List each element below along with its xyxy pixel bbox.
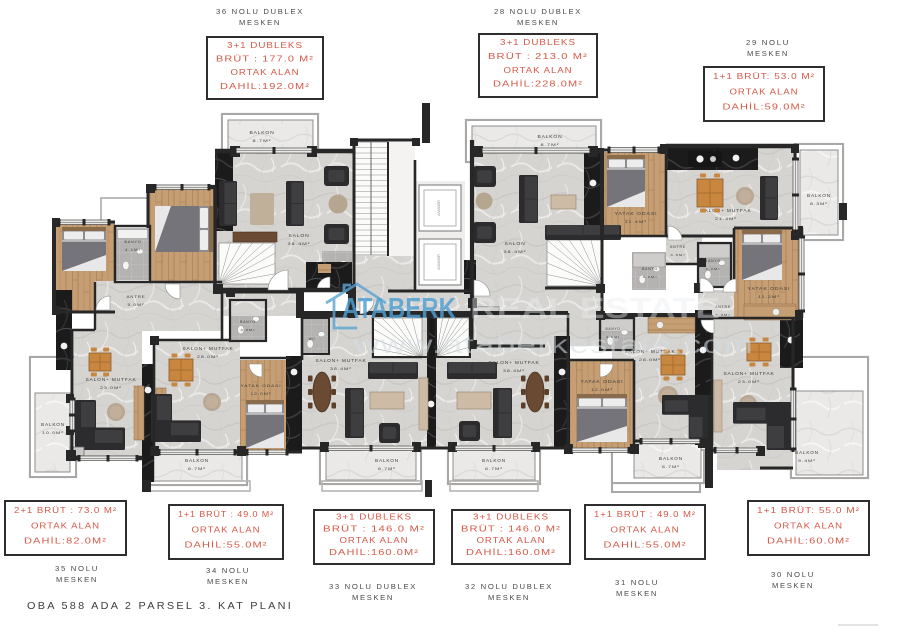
svg-text:ASANSÖR: ASANSÖR	[437, 200, 441, 216]
svg-text:MESKEN: MESKEN	[56, 575, 98, 584]
svg-text:29 NOLU: 29 NOLU	[746, 38, 790, 47]
svg-text:BRÜT : 146.0 M²: BRÜT : 146.0 M²	[323, 524, 425, 533]
svg-text:32 NOLU DUBLEX: 32 NOLU DUBLEX	[465, 582, 553, 591]
svg-text:DAHİL:82.0M²: DAHİL:82.0M²	[24, 537, 107, 546]
svg-text:6.7M²: 6.7M²	[485, 467, 503, 471]
svg-text:10.0M²: 10.0M²	[42, 431, 64, 435]
svg-text:11.2M²: 11.2M²	[758, 295, 780, 299]
svg-text:31 NOLU: 31 NOLU	[615, 578, 659, 587]
svg-text:BANYO: BANYO	[642, 267, 658, 271]
svg-text:ORTAK ALAN: ORTAK ALAN	[31, 521, 100, 530]
svg-text:8.7M²: 8.7M²	[541, 142, 560, 147]
svg-text:SALON+ MUTFAK: SALON+ MUTFAK	[724, 371, 775, 376]
svg-text:YATAK ODASI: YATAK ODASI	[581, 379, 624, 384]
svg-text:BALKON: BALKON	[795, 450, 819, 455]
svg-text:28.0M²: 28.0M²	[197, 355, 219, 359]
svg-text:BALKON: BALKON	[659, 456, 683, 461]
svg-text:6.7M²: 6.7M²	[378, 467, 396, 471]
svg-text:BALKON: BALKON	[807, 193, 831, 198]
svg-text:2+1 BRÜT : 73.0 M²: 2+1 BRÜT : 73.0 M²	[14, 506, 117, 515]
svg-text:ORTAK ALAN: ORTAK ALAN	[340, 536, 409, 545]
svg-text:BRÜT : 213.0 M²: BRÜT : 213.0 M²	[488, 52, 588, 61]
svg-text:ATABERK: ATABERK	[342, 293, 456, 325]
svg-text:1+1 BRÜT : 49.0 M²: 1+1 BRÜT : 49.0 M²	[178, 510, 274, 519]
svg-text:38.4M²: 38.4M²	[288, 241, 311, 246]
svg-text:36 NOLU DUBLEX: 36 NOLU DUBLEX	[216, 7, 304, 16]
svg-text:23.0M²: 23.0M²	[738, 380, 760, 384]
svg-text:ORTAK ALAN: ORTAK ALAN	[231, 68, 300, 77]
svg-text:YATAK ODASI: YATAK ODASI	[615, 211, 658, 216]
svg-text:33 NOLU DUBLEX: 33 NOLU DUBLEX	[329, 582, 417, 591]
svg-text:MESKEN: MESKEN	[207, 577, 249, 586]
svg-text:1+1 BRÜT: 55.0 M²: 1+1 BRÜT: 55.0 M²	[757, 506, 860, 515]
svg-text:23.0M²: 23.0M²	[100, 386, 122, 390]
svg-text:ORTAK ALAN: ORTAK ALAN	[477, 536, 546, 545]
svg-text:ORTAK ALAN: ORTAK ALAN	[192, 525, 261, 534]
svg-text:YATAK ODASI: YATAK ODASI	[748, 286, 791, 291]
svg-text:6.7M²: 6.7M²	[662, 465, 680, 469]
svg-text:SALON: SALON	[505, 241, 526, 246]
svg-text:BALKON: BALKON	[375, 458, 399, 463]
svg-text:35 NOLU: 35 NOLU	[55, 564, 99, 573]
svg-text:BALKON: BALKON	[41, 422, 65, 427]
svg-text:MESKEN: MESKEN	[488, 593, 530, 602]
svg-text:4.0M²: 4.0M²	[241, 328, 256, 332]
svg-text:DAHİL:192.0M²: DAHİL:192.0M²	[220, 82, 310, 91]
svg-text:28 NOLU DUBLEX: 28 NOLU DUBLEX	[494, 7, 582, 16]
svg-text:SALON+ MUTFAK: SALON+ MUTFAK	[86, 377, 137, 382]
svg-text:21.4M²: 21.4M²	[715, 217, 737, 221]
svg-text:3+1 DUBLEKS: 3+1 DUBLEKS	[227, 41, 303, 50]
svg-text:MESKEN: MESKEN	[517, 18, 559, 27]
svg-text:DAHİL:55.0M²: DAHİL:55.0M²	[604, 541, 687, 550]
svg-text:BANYO: BANYO	[705, 259, 721, 263]
svg-text:9.4M²: 9.4M²	[798, 459, 816, 463]
svg-text:38.4M²: 38.4M²	[330, 367, 352, 371]
svg-text:ORTAK ALAN: ORTAK ALAN	[774, 521, 843, 530]
svg-text:38.4M²: 38.4M²	[504, 249, 527, 254]
svg-text:30 NOLU: 30 NOLU	[771, 570, 815, 579]
svg-text:ANTRE: ANTRE	[670, 245, 686, 249]
svg-text:1+1 BRÜT : 49.0 M²: 1+1 BRÜT : 49.0 M²	[594, 510, 696, 519]
svg-text:4.1M²: 4.1M²	[125, 248, 141, 252]
svg-text:8.3M²: 8.3M²	[810, 202, 828, 206]
svg-text:BALKON: BALKON	[538, 134, 563, 139]
svg-text:BALKON: BALKON	[185, 458, 209, 463]
svg-text:YATAK ODASI: YATAK ODASI	[241, 383, 282, 388]
svg-text:5.0M²: 5.0M²	[128, 303, 145, 307]
svg-text:3+1 DUBLEKS: 3+1 DUBLEKS	[473, 512, 549, 521]
svg-text:BALKON: BALKON	[250, 130, 275, 135]
svg-text:BRÜT : 146.0 M²: BRÜT : 146.0 M²	[461, 524, 561, 533]
svg-text:8.7M²: 8.7M²	[253, 138, 272, 143]
svg-text:DAHİL:160.0M²: DAHİL:160.0M²	[329, 548, 419, 557]
svg-text:WC: WC	[309, 337, 316, 341]
svg-text:1+1 BRÜT: 53.0 M²: 1+1 BRÜT: 53.0 M²	[713, 72, 815, 81]
svg-text:ASANSÖR: ASANSÖR	[437, 254, 441, 270]
svg-text:34 NOLU: 34 NOLU	[206, 566, 250, 575]
svg-text:SALON+ MUTFAK: SALON+ MUTFAK	[183, 346, 234, 351]
svg-text:www.ataberkestate.com: www.ataberkestate.com	[353, 331, 754, 359]
svg-text:3+1 DUBLEKS: 3+1 DUBLEKS	[500, 38, 576, 47]
svg-text:DAHİL:55.0M²: DAHİL:55.0M²	[185, 541, 268, 550]
svg-text:BANYO: BANYO	[240, 320, 256, 324]
svg-text:ORTAK ALAN: ORTAK ALAN	[730, 87, 799, 96]
svg-text:MESKEN: MESKEN	[239, 18, 281, 27]
svg-text:BRÜT : 177.0 M²: BRÜT : 177.0 M²	[216, 55, 314, 64]
svg-text:11.4M²: 11.4M²	[625, 220, 647, 224]
svg-text:6.7M²: 6.7M²	[188, 467, 206, 471]
svg-text:4.0M²: 4.0M²	[643, 275, 658, 279]
svg-text:BALKON: BALKON	[482, 458, 506, 463]
svg-text:MESKEN: MESKEN	[352, 593, 394, 602]
svg-text:12.0M²: 12.0M²	[591, 388, 613, 392]
svg-text:3+1 DUBLEKS: 3+1 DUBLEKS	[336, 512, 412, 521]
svg-text:DAHİL:59.0M²: DAHİL:59.0M²	[723, 103, 806, 112]
svg-text:12.0M²: 12.0M²	[251, 392, 272, 396]
svg-text:ORTAK ALAN: ORTAK ALAN	[611, 525, 680, 534]
svg-text:4.6M²: 4.6M²	[671, 253, 686, 257]
svg-text:MESKEN: MESKEN	[772, 581, 814, 590]
svg-text:ANTRE: ANTRE	[127, 294, 146, 299]
svg-text:ORTAK ALAN: ORTAK ALAN	[504, 66, 573, 75]
svg-text:MESKEN: MESKEN	[616, 589, 658, 598]
svg-text:REAL ESTATE: REAL ESTATE	[470, 293, 720, 325]
svg-text:BANYO: BANYO	[125, 240, 142, 244]
svg-text:DAHİL:160.0M²: DAHİL:160.0M²	[466, 548, 556, 557]
svg-text:DAHİL:228.0M²: DAHİL:228.0M²	[493, 80, 583, 89]
svg-text:SALON: SALON	[289, 233, 310, 238]
svg-text:SALON+ MUTFAK: SALON+ MUTFAK	[701, 208, 752, 213]
svg-text:OBA 588 ADA 2 PARSEL 3. KAT PL: OBA 588 ADA 2 PARSEL 3. KAT PLANI	[27, 600, 293, 612]
svg-text:DAHİL:60.0M²: DAHİL:60.0M²	[767, 537, 850, 546]
svg-text:4.0M²: 4.0M²	[706, 267, 721, 271]
svg-text:38.4M²: 38.4M²	[503, 369, 525, 373]
svg-text:MESKEN: MESKEN	[747, 49, 789, 58]
